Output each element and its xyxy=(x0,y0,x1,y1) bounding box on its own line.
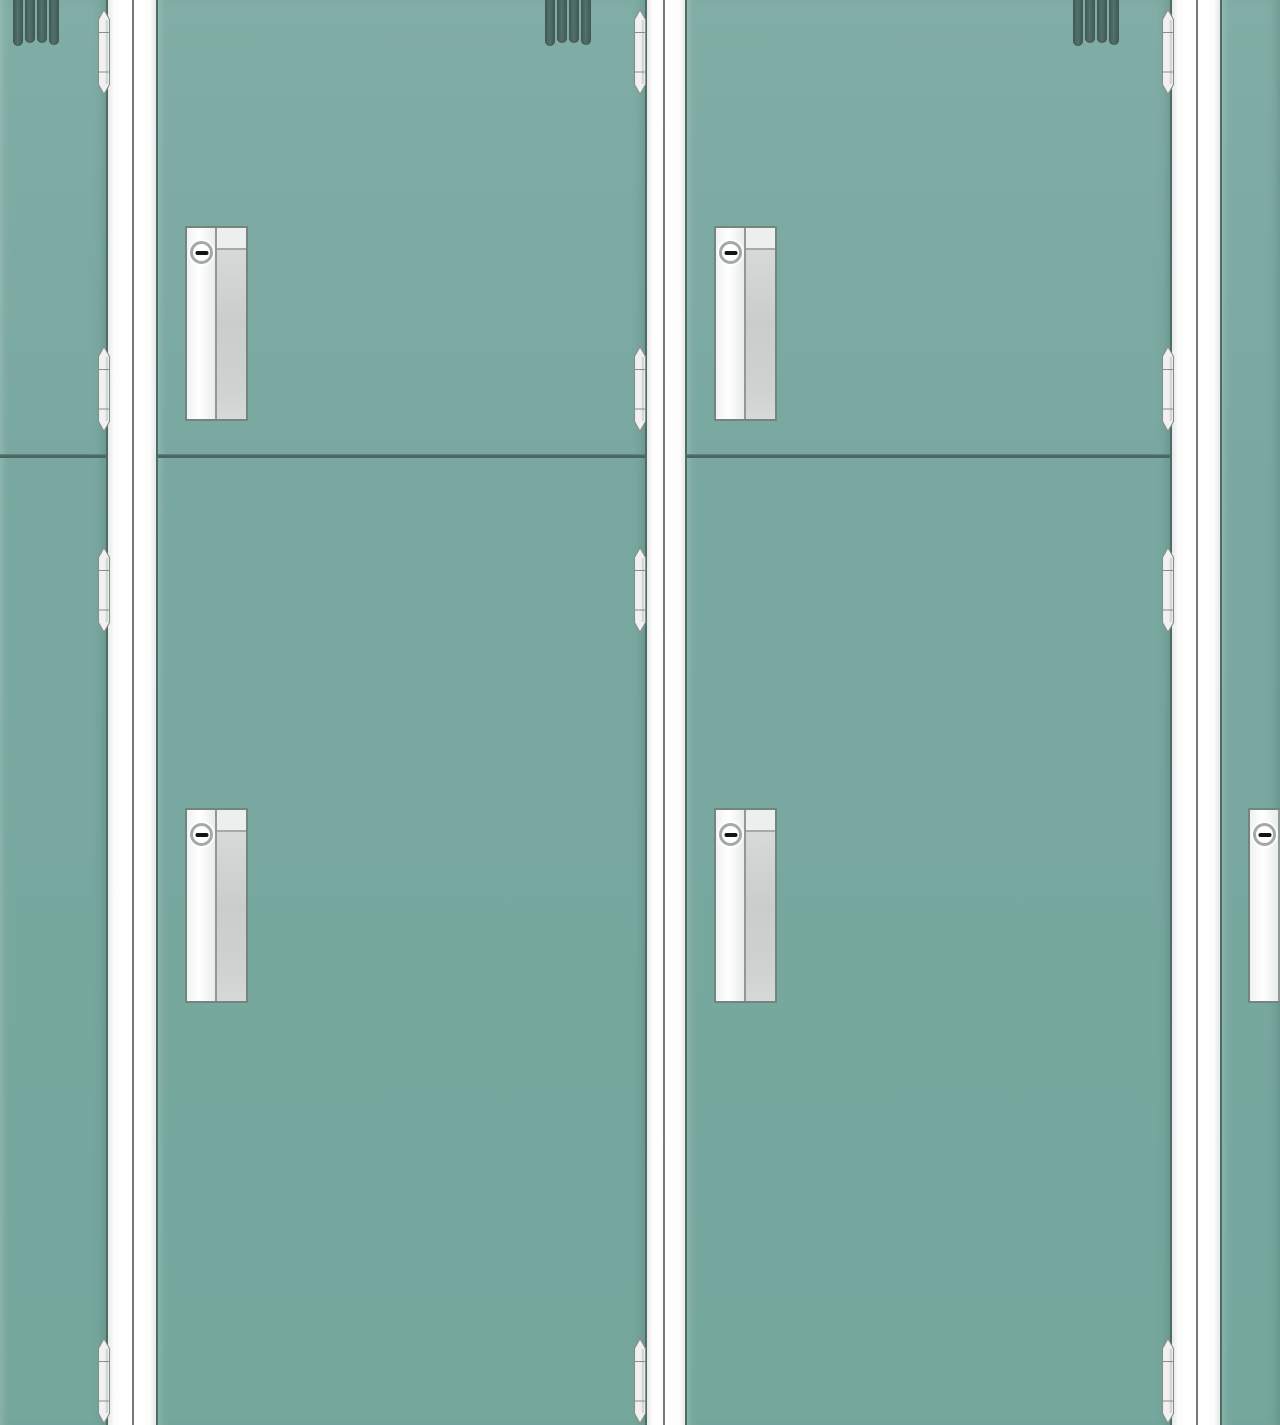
door-handle xyxy=(185,226,248,421)
door-handle xyxy=(1248,808,1280,1003)
vent-slot xyxy=(545,0,555,46)
door-hinge xyxy=(633,9,647,95)
lock-cylinder-icon xyxy=(719,823,742,846)
door-split-line xyxy=(0,454,106,458)
locker-door-left-partial xyxy=(0,0,106,1425)
door-handle xyxy=(714,226,777,421)
vent-slot xyxy=(1085,0,1095,43)
door-hinge xyxy=(97,346,111,432)
vent-slot xyxy=(13,0,23,46)
vent-slot xyxy=(1073,0,1083,46)
handle-grip-recess xyxy=(217,228,246,419)
frame-strip-2 xyxy=(645,0,687,1425)
locker-wall-scene xyxy=(0,0,1280,1425)
handle-grip-recess xyxy=(746,810,775,1001)
lock-cylinder-icon xyxy=(190,823,213,846)
door-handle xyxy=(185,808,248,1003)
frame-strip-seam-line xyxy=(1196,0,1198,1425)
lock-cylinder-icon xyxy=(719,241,742,264)
handle-grip-recess xyxy=(217,810,246,1001)
door-hinge xyxy=(1161,346,1175,432)
door-hinge xyxy=(1161,547,1175,633)
handle-grip-top-band xyxy=(746,810,775,832)
door-hinge xyxy=(1161,1338,1175,1424)
vent-slot xyxy=(1109,0,1119,45)
keyhole-slot-icon xyxy=(724,833,737,837)
vent-slot xyxy=(25,0,35,43)
vent-slot xyxy=(557,0,567,43)
door-handle xyxy=(714,808,777,1003)
keyhole-slot-icon xyxy=(1258,833,1271,837)
door-hinge xyxy=(1161,9,1175,95)
keyhole-slot-icon xyxy=(195,833,208,837)
door-hinge xyxy=(633,346,647,432)
door-split-line xyxy=(158,454,645,458)
door-hinge xyxy=(633,547,647,633)
frame-strip-3 xyxy=(1170,0,1222,1425)
locker-door-1 xyxy=(158,0,645,1425)
keyhole-slot-icon xyxy=(195,251,208,255)
locker-door-2 xyxy=(687,0,1170,1425)
locker-door-right-partial xyxy=(1222,0,1280,1425)
frame-strip-1 xyxy=(106,0,158,1425)
vent-slot xyxy=(581,0,591,45)
vent-slot xyxy=(569,0,579,43)
vent-slot xyxy=(49,0,59,45)
vent-slot xyxy=(1097,0,1107,43)
handle-grip-recess xyxy=(746,228,775,419)
door-split-line xyxy=(687,454,1170,458)
handle-grip-top-band xyxy=(217,228,246,250)
frame-strip-seam-line xyxy=(663,0,665,1425)
door-hinge xyxy=(97,547,111,633)
keyhole-slot-icon xyxy=(724,251,737,255)
door-hinge xyxy=(97,1338,111,1424)
lock-cylinder-icon xyxy=(1253,823,1276,846)
frame-strip-seam-line xyxy=(132,0,134,1425)
vent-slot xyxy=(37,0,47,43)
lock-cylinder-icon xyxy=(190,241,213,264)
door-hinge xyxy=(633,1338,647,1424)
door-hinge xyxy=(97,9,111,95)
handle-grip-top-band xyxy=(217,810,246,832)
handle-grip-top-band xyxy=(746,228,775,250)
